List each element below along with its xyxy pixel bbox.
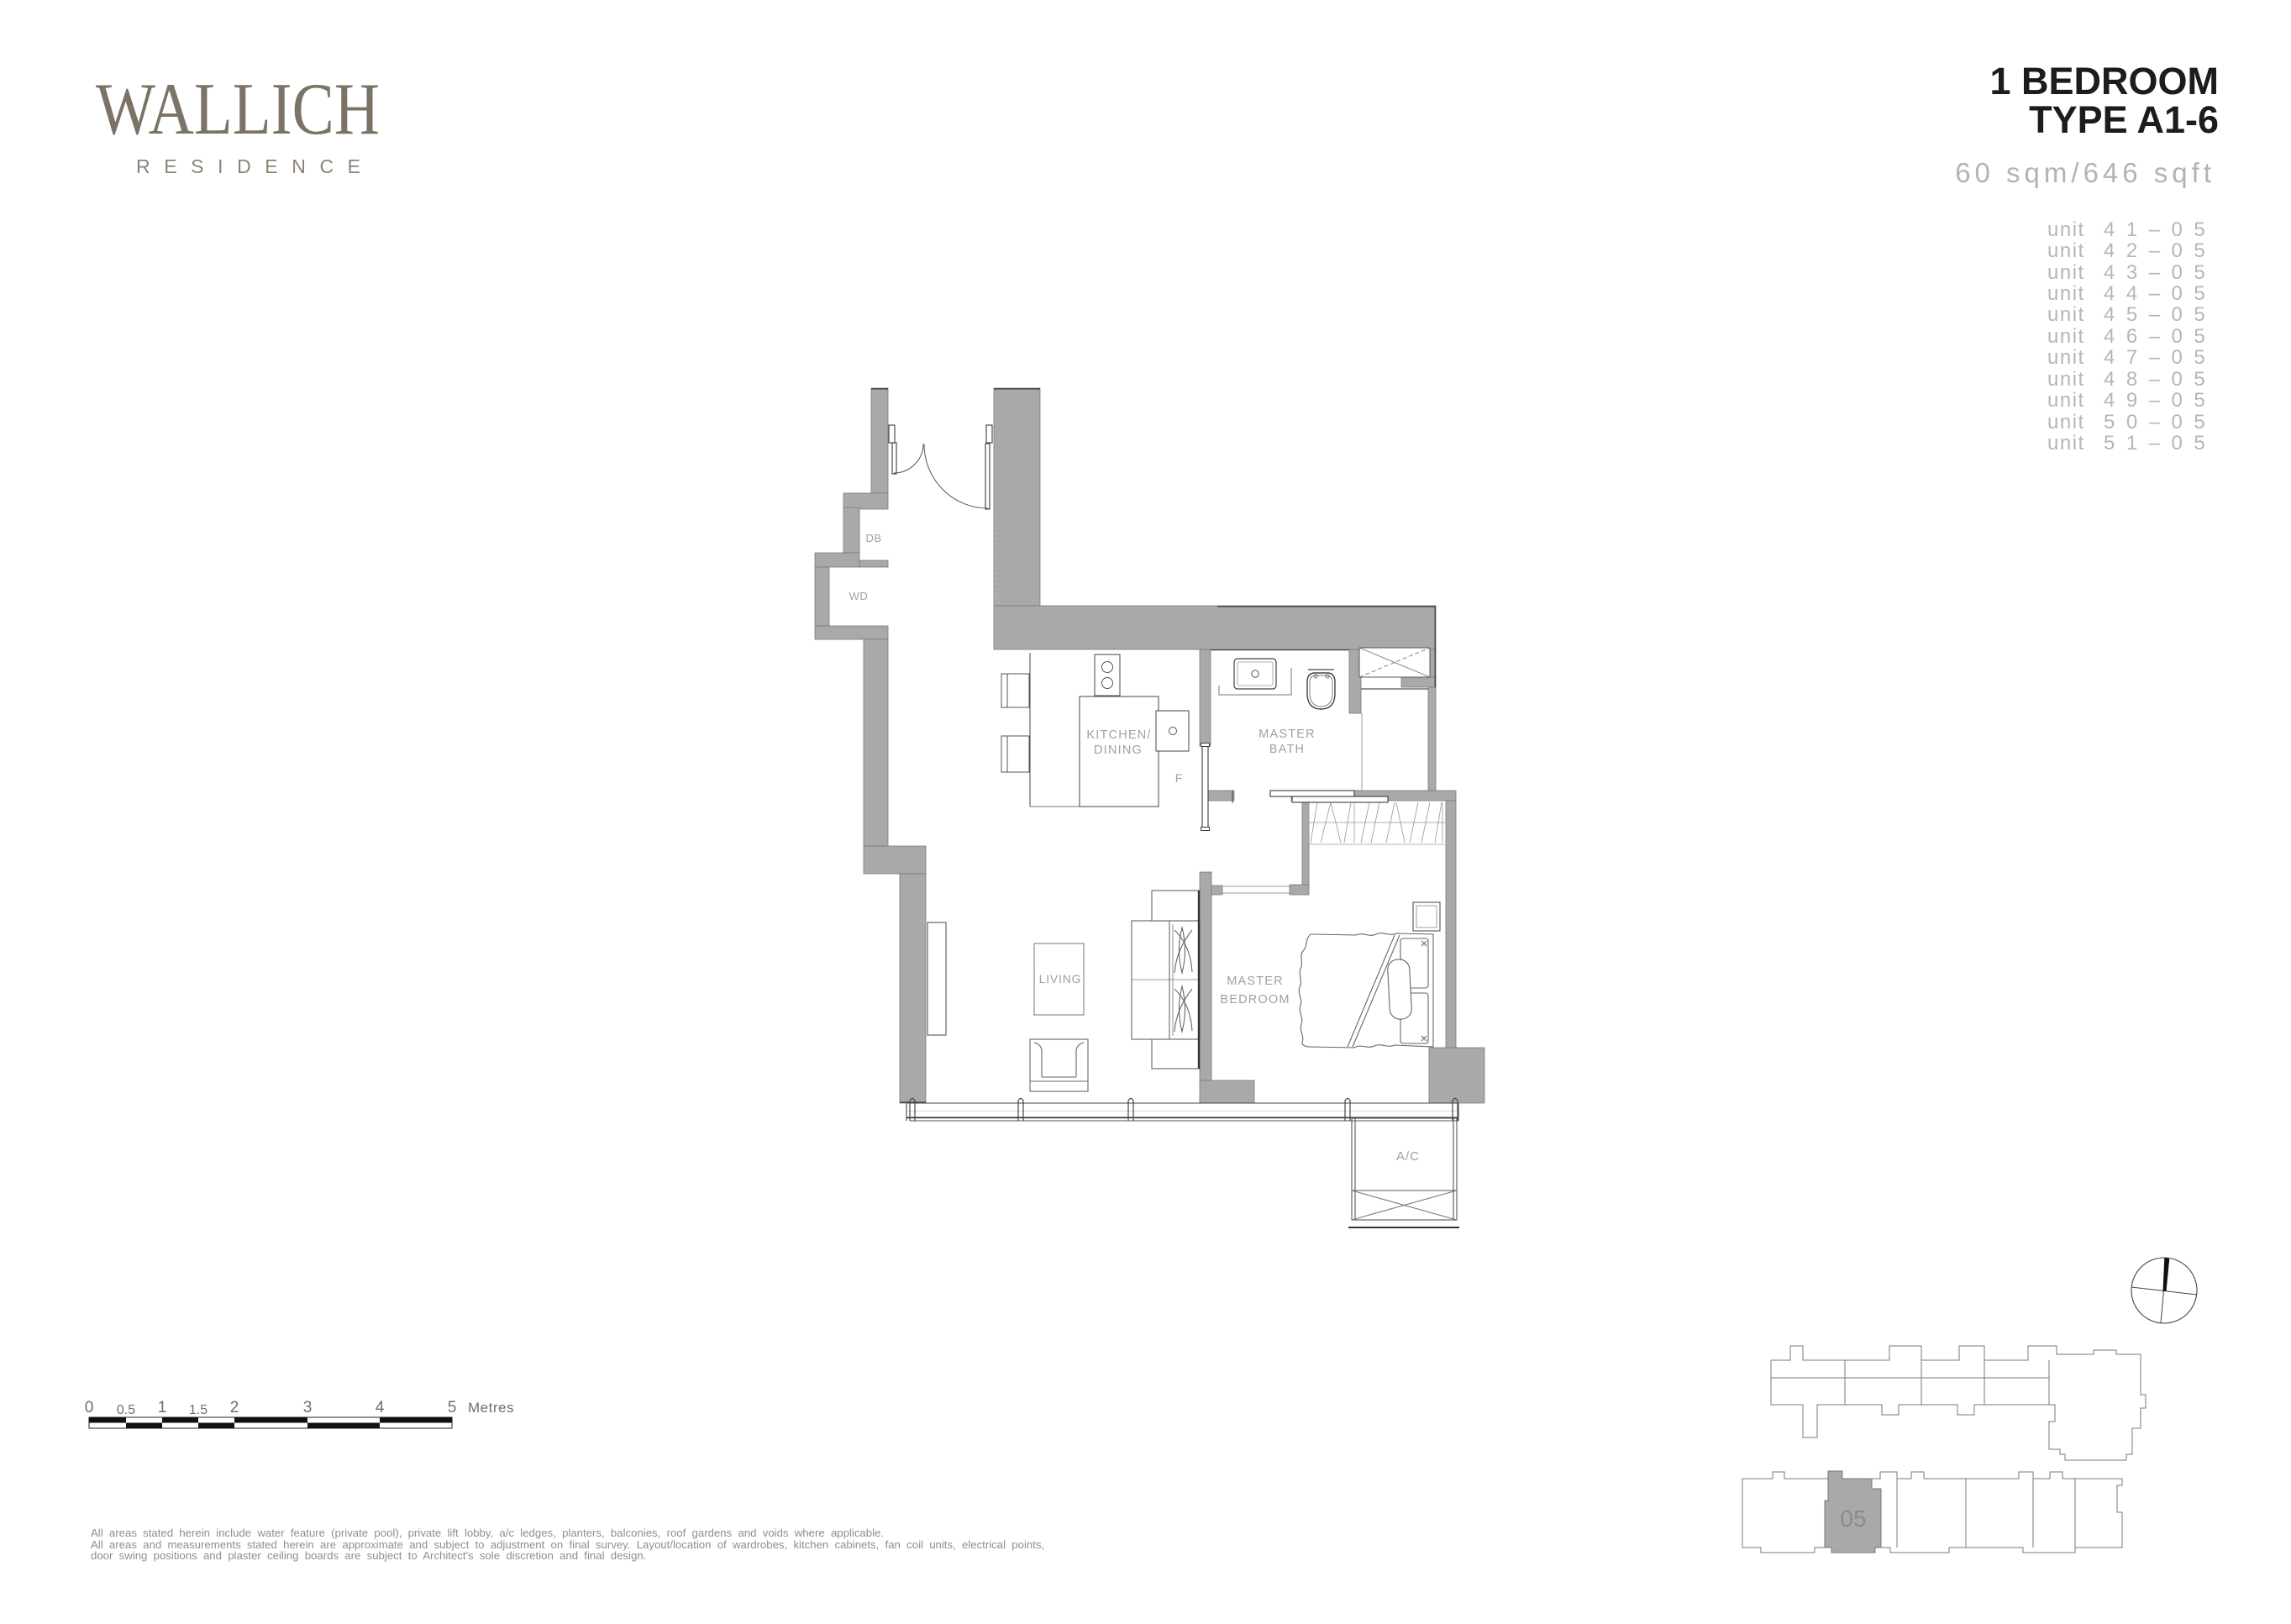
svg-text:BEDROOM: BEDROOM bbox=[1220, 993, 1290, 1006]
svg-text:WALLICH: WALLICH bbox=[96, 69, 380, 150]
svg-text:KITCHEN/: KITCHEN/ bbox=[1086, 728, 1151, 742]
svg-text:LIVING: LIVING bbox=[1039, 972, 1082, 985]
svg-text:WD: WD bbox=[849, 590, 869, 602]
svg-text:1 BEDROOM: 1 BEDROOM bbox=[1989, 60, 2219, 102]
svg-text:door swing positions and plast: door swing positions and plaster ceiling… bbox=[91, 1549, 646, 1562]
svg-text:05: 05 bbox=[1840, 1506, 1866, 1532]
svg-text:45–05: 45–05 bbox=[2104, 303, 2216, 326]
svg-text:unit: unit bbox=[2047, 303, 2085, 326]
svg-text:unit: unit bbox=[2047, 346, 2085, 369]
svg-text:MASTER: MASTER bbox=[1227, 975, 1284, 988]
svg-text:unit: unit bbox=[2047, 389, 2085, 412]
svg-text:1.5: 1.5 bbox=[189, 1403, 208, 1417]
svg-text:1: 1 bbox=[158, 1399, 167, 1416]
svg-text:60 sqm/646 sqft: 60 sqm/646 sqft bbox=[1955, 157, 2215, 188]
svg-text:unit: unit bbox=[2047, 239, 2085, 262]
svg-text:46–05: 46–05 bbox=[2104, 325, 2216, 348]
svg-text:DINING: DINING bbox=[1094, 744, 1143, 757]
svg-text:MASTER: MASTER bbox=[1258, 728, 1316, 741]
svg-text:0.5: 0.5 bbox=[117, 1403, 135, 1417]
svg-text:51–05: 51–05 bbox=[2104, 432, 2216, 455]
svg-text:unit: unit bbox=[2047, 282, 2085, 305]
svg-text:unit: unit bbox=[2047, 411, 2085, 434]
svg-text:47–05: 47–05 bbox=[2104, 346, 2216, 369]
svg-text:42–05: 42–05 bbox=[2104, 239, 2216, 262]
svg-text:Metres: Metres bbox=[468, 1400, 514, 1416]
svg-text:All areas stated herein includ: All areas stated herein include water fe… bbox=[91, 1527, 884, 1539]
svg-text:BATH: BATH bbox=[1269, 743, 1305, 756]
svg-text:41–05: 41–05 bbox=[2104, 218, 2216, 241]
svg-text:F: F bbox=[1175, 771, 1183, 785]
svg-text:3: 3 bbox=[303, 1399, 313, 1416]
svg-text:unit: unit bbox=[2047, 368, 2085, 391]
svg-text:43–05: 43–05 bbox=[2104, 261, 2216, 284]
svg-text:0: 0 bbox=[85, 1399, 94, 1416]
svg-text:50–05: 50–05 bbox=[2104, 411, 2216, 434]
svg-text:5: 5 bbox=[448, 1399, 457, 1416]
svg-text:2: 2 bbox=[230, 1399, 239, 1416]
svg-text:unit: unit bbox=[2047, 325, 2085, 348]
svg-text:TYPE A1-6: TYPE A1-6 bbox=[2029, 98, 2219, 141]
svg-text:unit: unit bbox=[2047, 261, 2085, 284]
svg-text:48–05: 48–05 bbox=[2104, 368, 2216, 391]
svg-text:RESIDENCE: RESIDENCE bbox=[136, 155, 372, 177]
svg-text:A/C: A/C bbox=[1396, 1149, 1420, 1164]
svg-text:49–05: 49–05 bbox=[2104, 389, 2216, 412]
svg-text:DB: DB bbox=[865, 532, 881, 544]
svg-text:unit: unit bbox=[2047, 432, 2085, 455]
svg-text:unit: unit bbox=[2047, 218, 2085, 241]
svg-text:4: 4 bbox=[376, 1399, 385, 1416]
svg-text:44–05: 44–05 bbox=[2104, 282, 2216, 305]
